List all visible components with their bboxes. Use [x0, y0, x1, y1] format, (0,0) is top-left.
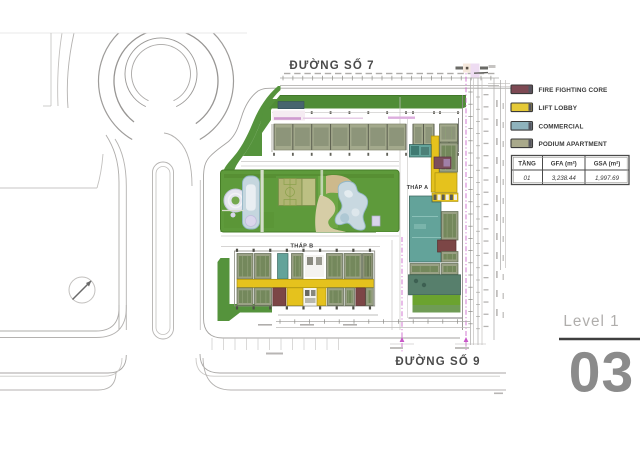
svg-text:ĐƯỜNG SỐ 9: ĐƯỜNG SỐ 9	[395, 354, 480, 368]
svg-text:GFA (m²): GFA (m²)	[551, 161, 577, 168]
svg-text:GSA (m²): GSA (m²)	[594, 161, 621, 168]
svg-text:COMMERCIAL: COMMERCIAL	[539, 124, 584, 131]
svg-text:1,997.69: 1,997.69	[595, 175, 620, 182]
svg-text:01: 01	[524, 175, 531, 182]
svg-text:03: 03	[569, 341, 634, 405]
svg-text:FIRE FIGHTING CORE: FIRE FIGHTING CORE	[539, 87, 609, 94]
svg-text:LIFT LOBBY: LIFT LOBBY	[539, 105, 578, 112]
svg-text:THÁP B: THÁP B	[290, 243, 313, 250]
svg-text:Level 1: Level 1	[563, 313, 619, 330]
svg-text:TẦNG: TẦNG	[518, 161, 536, 168]
svg-text:ĐƯỜNG SỐ 7: ĐƯỜNG SỐ 7	[289, 58, 374, 72]
svg-text:3,238.44: 3,238.44	[552, 175, 577, 182]
svg-text:PODIUM APARTMENT: PODIUM APARTMENT	[539, 141, 607, 148]
svg-text:THÁP A: THÁP A	[407, 184, 429, 191]
